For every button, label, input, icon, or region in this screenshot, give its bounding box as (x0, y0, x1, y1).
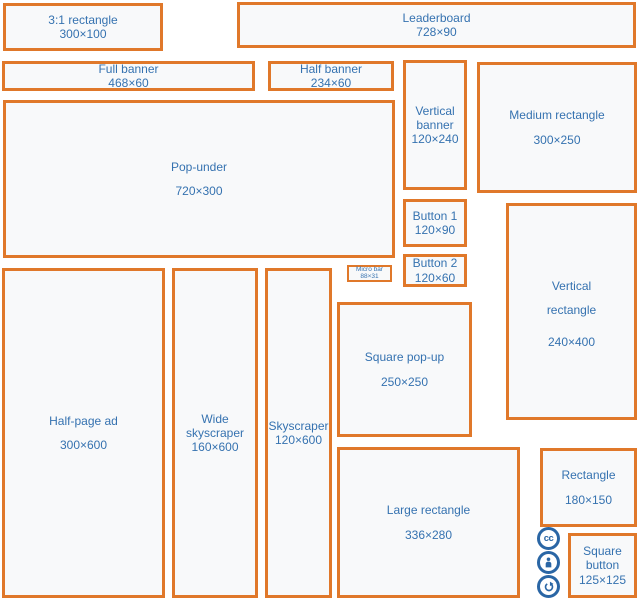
ad-format-name: Vertical banner (406, 104, 464, 132)
ad-format-size: 234×60 (311, 76, 351, 90)
ad-format-name: Half-page ad (49, 414, 118, 428)
share-alike-icon (537, 575, 560, 598)
ad-format-size: 720×300 (175, 184, 222, 198)
ad-format-name: Full banner (98, 62, 158, 76)
ad-format-vertical-banner: Vertical banner 120×240 (403, 60, 467, 190)
ad-format-skyscraper: Skyscraper 120×600 (265, 268, 332, 598)
ad-format-size: 125×125 (579, 573, 626, 587)
ad-format-button-1: Button 1 120×90 (403, 199, 467, 247)
ad-format-size: 120×600 (275, 433, 322, 447)
ad-format-medium-rectangle: Medium rectangle 300×250 (477, 62, 637, 193)
ad-format-name: Pop-under (171, 160, 227, 174)
ad-format-name: Wide skyscraper (175, 412, 255, 440)
ad-format-size: 336×280 (405, 528, 452, 542)
ad-format-name: Medium rectangle (509, 108, 604, 122)
ad-format-full-banner: Full banner 468×60 (2, 61, 255, 91)
ad-format-size: 160×600 (191, 440, 238, 454)
ad-format-name: Skyscraper (268, 419, 328, 433)
ad-format-half-page-ad: Half-page ad 300×600 (2, 268, 165, 598)
ad-format-square-button: Square button 125×125 (568, 533, 637, 598)
ad-format-size: 120×90 (415, 223, 455, 237)
attribution-icon (537, 551, 560, 574)
ad-format-name: Rectangle (561, 468, 615, 482)
ad-format-name: Square button (571, 544, 634, 572)
ad-format-size: 120×240 (411, 132, 458, 146)
ad-format-size: 88×31 (360, 274, 378, 281)
ad-format-size: 300×600 (60, 438, 107, 452)
ad-format-large-rectangle: Large rectangle 336×280 (337, 447, 520, 598)
ad-format-pop-under: Pop-under 720×300 (3, 100, 395, 258)
ad-format-rectangle: Rectangle 180×150 (540, 448, 637, 527)
ad-format-name: 3:1 rectangle (48, 13, 117, 27)
license-icons: cc (537, 527, 560, 598)
ad-format-name: Square pop-up (365, 350, 444, 364)
ad-format-name: Leaderboard (402, 11, 470, 25)
ad-format-name: Button 2 (413, 256, 458, 270)
ad-format-leaderboard: Leaderboard 728×90 (237, 2, 636, 48)
ad-format-button-2: Button 2 120×60 (403, 254, 467, 287)
ad-format-name: Large rectangle (387, 503, 470, 517)
ad-format-half-banner: Half banner 234×60 (268, 61, 394, 91)
ad-format-size: 728×90 (416, 25, 456, 39)
ad-format-size: 240×400 (548, 335, 595, 349)
ad-format-size: 120×60 (415, 271, 455, 285)
ad-format-name: Vertical rectangle (536, 274, 608, 322)
ad-format-square-pop-up: Square pop-up 250×250 (337, 302, 472, 437)
ad-format-3-1-rectangle: 3:1 rectangle 300×100 (3, 3, 163, 51)
ad-sizes-diagram: 3:1 rectangle 300×100 Leaderboard 728×90… (0, 0, 638, 600)
creative-commons-icon: cc (537, 527, 560, 550)
ad-format-micro-bar: Micro bar 88×31 (347, 265, 392, 282)
ad-format-name: Button 1 (413, 209, 458, 223)
ad-format-name: Half banner (300, 62, 362, 76)
cc-glyph: cc (544, 534, 554, 544)
ad-format-size: 300×250 (533, 133, 580, 147)
ad-format-size: 300×100 (59, 27, 106, 41)
ad-format-wide-skyscraper: Wide skyscraper 160×600 (172, 268, 258, 598)
ad-format-size: 180×150 (565, 493, 612, 507)
ad-format-size: 250×250 (381, 375, 428, 389)
ad-format-size: 468×60 (108, 76, 148, 90)
ad-format-vertical-rectangle: Vertical rectangle 240×400 (506, 203, 637, 420)
